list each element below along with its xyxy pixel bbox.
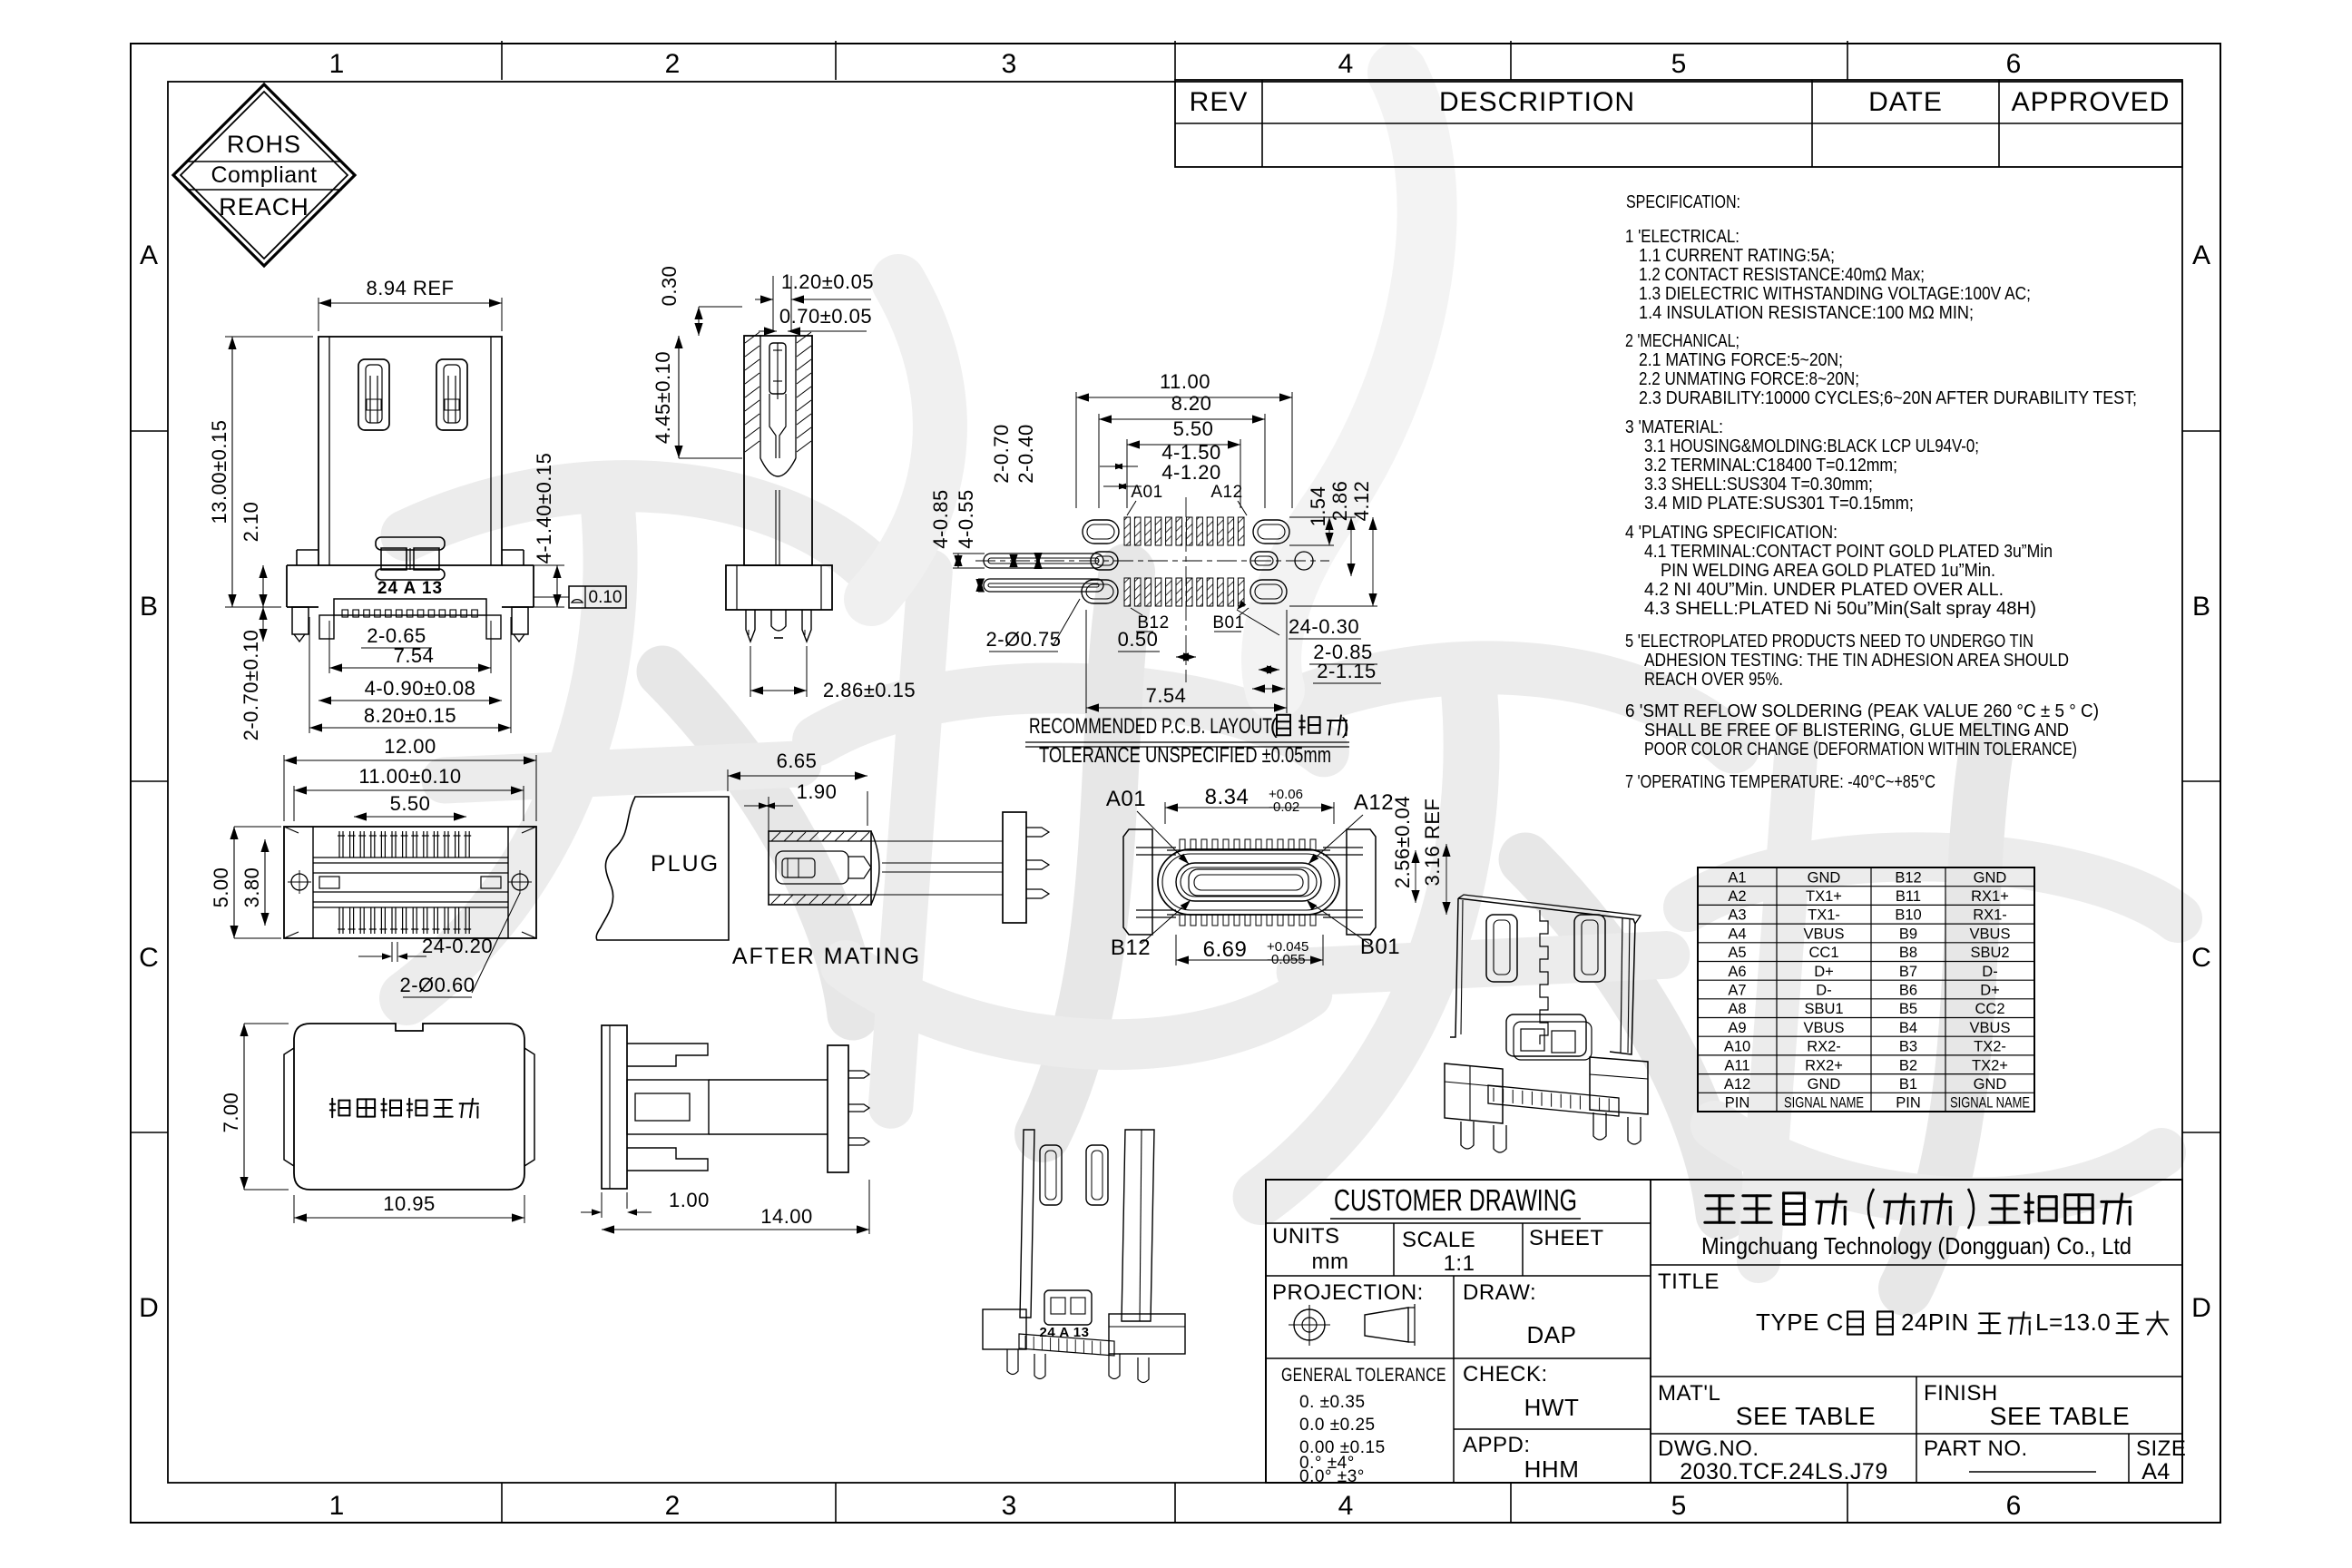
svg-text:A10: A10	[1724, 1039, 1750, 1055]
svg-text:4.2 NI 40U”Min. UNDER PLAT: 4.2 NI 40U”Min. UNDER PLATED OVER ALL.	[1644, 579, 2004, 600]
svg-text:D+: D+	[1980, 983, 2000, 999]
svg-text:C: C	[2191, 943, 2211, 973]
svg-text:7 'OPERATING TEMPERATURE: -40: 7 'OPERATING TEMPERATURE: -40°C~+85°C	[1625, 771, 1935, 792]
svg-text:3.16 REF: 3.16 REF	[1421, 799, 1444, 887]
svg-text:24 A 13: 24 A 13	[1040, 1325, 1090, 1340]
svg-text:1.54: 1.54	[1307, 486, 1329, 527]
svg-text:4 'PLATING SPECIFICATION:: 4 'PLATING SPECIFICATION:	[1625, 522, 1837, 543]
svg-text:3: 3	[1002, 1491, 1017, 1521]
svg-text:SBU1: SBU1	[1804, 1001, 1843, 1017]
svg-text:8.20: 8.20	[1171, 392, 1212, 415]
svg-text:TX1+: TX1+	[1806, 888, 1842, 905]
svg-text:1: 1	[329, 49, 345, 79]
svg-text:GND: GND	[1808, 869, 1841, 886]
svg-text:TX1-: TX1-	[1808, 907, 1840, 924]
svg-text:2.10: 2.10	[240, 502, 262, 543]
svg-text:2.56±0.04: 2.56±0.04	[1391, 796, 1414, 888]
svg-text:D-: D-	[1982, 964, 1997, 980]
svg-text:2-0.40: 2-0.40	[1014, 424, 1037, 483]
svg-text:A9: A9	[1728, 1020, 1746, 1036]
svg-text:4-1.20: 4-1.20	[1161, 461, 1220, 484]
svg-text:CUSTOMER DRAWING: CUSTOMER DRAWING	[1334, 1183, 1577, 1217]
svg-text:4-0.85: 4-0.85	[929, 489, 952, 548]
svg-text:Compliant: Compliant	[211, 162, 317, 188]
svg-text:C: C	[139, 943, 159, 973]
svg-text:0. ±0.35: 0. ±0.35	[1299, 1393, 1366, 1412]
svg-text:TITLE: TITLE	[1658, 1269, 1720, 1294]
svg-text:2-0.70: 2-0.70	[990, 424, 1013, 483]
svg-text:RECOMMENDED P.C.B. LAYOUT: RECOMMENDED P.C.B. LAYOUT	[1029, 714, 1272, 739]
svg-text:B6: B6	[1899, 983, 1917, 999]
svg-text:PART NO.: PART NO.	[1924, 1436, 2028, 1461]
svg-text:1: 1	[329, 1491, 345, 1521]
svg-text:2.86: 2.86	[1328, 481, 1351, 522]
svg-text:SIZE: SIZE	[2136, 1436, 2186, 1461]
svg-text:DRAW:: DRAW:	[1463, 1280, 1536, 1305]
svg-text:UNITS: UNITS	[1272, 1224, 1340, 1249]
svg-text:APPD:: APPD:	[1463, 1433, 1531, 1457]
svg-text:SIGNAL NAME: SIGNAL NAME	[1950, 1095, 2030, 1112]
svg-text:3.4 MID PLATE:SUS301 T=0.15: 3.4 MID PLATE:SUS301 T=0.15mm;	[1644, 493, 1914, 514]
svg-text:2.3 DURABILITY:10000 CYCLES;: 2.3 DURABILITY:10000 CYCLES;6~20N AFTER …	[1639, 387, 2137, 408]
svg-text:VBUS: VBUS	[1804, 926, 1845, 942]
svg-text:B9: B9	[1899, 926, 1917, 942]
svg-text:8.20±0.15: 8.20±0.15	[364, 704, 456, 727]
svg-text:DATE: DATE	[1868, 87, 1943, 117]
svg-text:B01: B01	[1360, 935, 1400, 959]
svg-text:6.65: 6.65	[777, 750, 818, 772]
svg-text:1.1 CURRENT RATING:5A;: 1.1 CURRENT RATING:5A;	[1639, 245, 1835, 266]
svg-text:24-0.20: 24-0.20	[422, 935, 493, 957]
svg-text:RX2-: RX2-	[1807, 1039, 1841, 1055]
svg-text:A8: A8	[1728, 1001, 1746, 1017]
svg-text:GND: GND	[1974, 1076, 2007, 1093]
svg-text:B12: B12	[1111, 936, 1151, 960]
svg-text:6 'SMT REFLOW SOLDERING (PE: 6 'SMT REFLOW SOLDERING (PEAK VALUE 260 …	[1625, 701, 2099, 721]
svg-text:RX1+: RX1+	[1971, 888, 2009, 905]
svg-text:14.00: 14.00	[760, 1205, 813, 1228]
svg-text:mm: mm	[1312, 1249, 1349, 1274]
svg-text:2: 2	[665, 1491, 681, 1521]
svg-text:B12: B12	[1895, 869, 1921, 886]
svg-text:SPECIFICATION:: SPECIFICATION:	[1626, 191, 1740, 212]
svg-text:2 'MECHANICAL;: 2 'MECHANICAL;	[1625, 330, 1739, 351]
svg-text:11.00±0.10: 11.00±0.10	[358, 765, 461, 788]
svg-text:A12: A12	[1724, 1076, 1750, 1093]
svg-text:1.20±0.05: 1.20±0.05	[781, 270, 874, 293]
svg-text:TYPE C: TYPE C	[1756, 1308, 1844, 1336]
svg-text:D: D	[139, 1293, 159, 1323]
svg-text:REV: REV	[1190, 87, 1249, 117]
svg-text:SIGNAL NAME: SIGNAL NAME	[1784, 1095, 1864, 1112]
svg-text:4-1.40±0.15: 4-1.40±0.15	[533, 453, 555, 564]
svg-text:SHALL BE FREE OF BLISTERIN: SHALL BE FREE OF BLISTERING, GLUE MELTIN…	[1644, 720, 2069, 740]
svg-text:DESCRIPTION: DESCRIPTION	[1439, 87, 1635, 117]
svg-text:DWG.NO.: DWG.NO.	[1658, 1436, 1759, 1461]
svg-text:HHM: HHM	[1524, 1455, 1580, 1483]
svg-text:B2: B2	[1899, 1057, 1917, 1073]
svg-text:1.90: 1.90	[797, 780, 838, 803]
svg-text:5: 5	[1671, 1491, 1687, 1521]
svg-text:MAT'L: MAT'L	[1658, 1381, 1720, 1406]
svg-text:GENERAL TOLERANCE: GENERAL TOLERANCE	[1281, 1365, 1446, 1386]
svg-text:2-1.15: 2-1.15	[1317, 660, 1376, 682]
svg-text:D-: D-	[1816, 983, 1831, 999]
svg-text:10.95: 10.95	[383, 1192, 436, 1215]
svg-text:1.4 INSULATION RESISTANCE:10: 1.4 INSULATION RESISTANCE:100 MΩ MIN;	[1639, 302, 1974, 323]
svg-text:A4: A4	[2141, 1459, 2171, 1485]
svg-text:5.50: 5.50	[1173, 417, 1214, 440]
svg-text:2-Ø0.60: 2-Ø0.60	[400, 974, 475, 996]
svg-text:0.10: 0.10	[589, 588, 622, 607]
svg-text:TX2+: TX2+	[1972, 1057, 2008, 1073]
svg-text:4: 4	[1338, 1491, 1354, 1521]
svg-text:5.00: 5.00	[210, 867, 232, 908]
svg-text:SBU2: SBU2	[1970, 945, 2009, 961]
svg-text:1.3 DIELECTRIC WITHSTANDING: 1.3 DIELECTRIC WITHSTANDING VOLTAGE:100V…	[1639, 283, 2031, 304]
svg-text:8.34: 8.34	[1205, 785, 1249, 809]
svg-text:A: A	[140, 240, 158, 270]
svg-text:6.69: 6.69	[1203, 937, 1248, 962]
svg-text:0.30: 0.30	[658, 266, 681, 307]
svg-text:13.00±0.15: 13.00±0.15	[208, 420, 230, 524]
svg-text:4.1 TERMINAL:CONTACT POINT: 4.1 TERMINAL:CONTACT POINT GOLD PLATED 3…	[1644, 541, 2053, 562]
svg-text:1.2 CONTACT RESISTANCE:40mΩ: 1.2 CONTACT RESISTANCE:40mΩ Max;	[1639, 264, 1925, 285]
svg-text:APPROVED: APPROVED	[2012, 87, 2171, 117]
svg-text:B4: B4	[1899, 1020, 1917, 1036]
svg-text:2-Ø0.75: 2-Ø0.75	[986, 628, 1062, 651]
svg-text:7.00: 7.00	[220, 1093, 242, 1133]
svg-text:7.54: 7.54	[394, 644, 435, 667]
svg-text:FINISH: FINISH	[1924, 1381, 1998, 1406]
svg-text:Mingchuang Technology (Donggua: Mingchuang Technology (Dongguan) Co., Lt…	[1701, 1232, 2131, 1259]
svg-text:4-0.55: 4-0.55	[955, 489, 977, 548]
svg-text:4.12: 4.12	[1350, 481, 1373, 522]
svg-text:PROJECTION:: PROJECTION:	[1272, 1280, 1424, 1305]
svg-text:B5: B5	[1899, 1001, 1917, 1017]
svg-text:24 A 13: 24 A 13	[377, 579, 443, 598]
svg-text:5 'ELECTROPLATED PRODUCTS NE: 5 'ELECTROPLATED PRODUCTS NEED TO UNDERG…	[1625, 631, 2033, 652]
svg-text:A01: A01	[1106, 787, 1146, 811]
svg-text:CC1: CC1	[1808, 945, 1838, 961]
svg-text:PIN: PIN	[1896, 1095, 1921, 1112]
svg-text:B3: B3	[1899, 1039, 1917, 1055]
svg-text:0.0° ±3°: 0.0° ±3°	[1299, 1467, 1365, 1486]
svg-text:SCALE: SCALE	[1402, 1228, 1475, 1252]
svg-text:PIN: PIN	[1725, 1095, 1750, 1112]
svg-text:2-0.70±0.10: 2-0.70±0.10	[240, 630, 262, 741]
svg-text:B1: B1	[1899, 1076, 1917, 1093]
svg-text:D: D	[2191, 1293, 2211, 1323]
svg-text:A12: A12	[1354, 790, 1394, 815]
svg-text:SHEET: SHEET	[1529, 1226, 1604, 1250]
svg-text:B8: B8	[1899, 945, 1917, 961]
svg-text:2.86±0.15: 2.86±0.15	[823, 679, 916, 701]
svg-text:11.00: 11.00	[1160, 370, 1210, 393]
svg-text:1.00: 1.00	[669, 1189, 710, 1211]
svg-text:A6: A6	[1728, 964, 1746, 980]
svg-text:3.80: 3.80	[240, 867, 263, 908]
svg-text:B: B	[140, 592, 158, 622]
svg-text:A: A	[2192, 240, 2210, 270]
svg-text:ADHESION TESTING: THE TIN: ADHESION TESTING: THE TIN ADHESION AREA …	[1644, 650, 2069, 671]
svg-text:24PIN: 24PIN	[1901, 1308, 1969, 1336]
svg-text:A1: A1	[1728, 869, 1746, 886]
svg-text:B7: B7	[1899, 964, 1917, 980]
svg-text:A11: A11	[1724, 1057, 1749, 1073]
svg-text:A4: A4	[1728, 926, 1746, 942]
svg-text:A12: A12	[1210, 483, 1242, 502]
svg-text:3 'MATERIAL:: 3 'MATERIAL:	[1625, 416, 1723, 437]
svg-text:L=13.0: L=13.0	[2035, 1308, 2111, 1336]
svg-text:24-0.30: 24-0.30	[1289, 615, 1359, 638]
svg-text:TOLERANCE UNSPECIFIED ±0.05m: TOLERANCE UNSPECIFIED ±0.05mm	[1039, 743, 1331, 768]
svg-text:2.1 MATING FORCE:5~20N;: 2.1 MATING FORCE:5~20N;	[1639, 349, 1843, 370]
svg-text:VBUS: VBUS	[1970, 1020, 2011, 1036]
svg-text:RX1-: RX1-	[1973, 907, 2007, 924]
svg-text:1 'ELECTRICAL:: 1 'ELECTRICAL:	[1625, 226, 1739, 247]
svg-text:5: 5	[1671, 49, 1687, 79]
svg-text:SEE TABLE: SEE TABLE	[1736, 1402, 1876, 1430]
svg-text:): )	[1342, 714, 1350, 739]
svg-text:B10: B10	[1895, 907, 1921, 924]
svg-text:3: 3	[1002, 49, 1017, 79]
svg-text:D+: D+	[1814, 964, 1834, 980]
svg-text:HWT: HWT	[1524, 1394, 1580, 1421]
svg-text:3.2 TERMINAL:C18400 T=0.12mm: 3.2 TERMINAL:C18400 T=0.12mm;	[1644, 455, 1897, 475]
svg-text:CC2: CC2	[1975, 1001, 2004, 1017]
svg-text:6: 6	[2006, 1491, 2022, 1521]
svg-text:4.45±0.10: 4.45±0.10	[652, 351, 674, 444]
svg-text:0.70±0.05: 0.70±0.05	[779, 305, 872, 328]
svg-text:2.2 UNMATING FORCE:8~20N;: 2.2 UNMATING FORCE:8~20N;	[1639, 368, 1859, 389]
svg-text:2: 2	[665, 49, 681, 79]
svg-text:A01: A01	[1131, 483, 1162, 502]
svg-text:PLUG: PLUG	[651, 851, 720, 877]
svg-text:GND: GND	[1974, 869, 2007, 886]
svg-text:6: 6	[2006, 49, 2022, 79]
svg-text:4-0.90±0.08: 4-0.90±0.08	[365, 677, 476, 700]
svg-text:CHECK:: CHECK:	[1463, 1362, 1548, 1387]
svg-text:0.0 ±0.25: 0.0 ±0.25	[1299, 1416, 1376, 1435]
svg-text:TX2-: TX2-	[1974, 1039, 2006, 1055]
svg-text:VBUS: VBUS	[1804, 1020, 1845, 1036]
svg-text:POOR COLOR CHANGE (DEFORMAT: POOR COLOR CHANGE (DEFORMATION WITHIN TO…	[1644, 739, 2077, 759]
svg-text:B: B	[2192, 592, 2210, 622]
svg-text:REACH OVER 95%.: REACH OVER 95%.	[1644, 669, 1783, 690]
svg-text:A3: A3	[1728, 907, 1746, 924]
svg-text:RX2+: RX2+	[1805, 1057, 1843, 1073]
svg-text:-0.055: -0.055	[1267, 952, 1306, 967]
svg-text:4.3 SHELL:PLATED Ni 50u”Min: 4.3 SHELL:PLATED Ni 50u”Min(Salt spray 4…	[1644, 598, 2036, 619]
svg-text:12.00: 12.00	[384, 735, 436, 758]
svg-text:A5: A5	[1728, 945, 1746, 961]
svg-text:3.3 SHELL:SUS304 T=0.30mm;: 3.3 SHELL:SUS304 T=0.30mm;	[1644, 474, 1873, 495]
svg-text:SEE TABLE: SEE TABLE	[1990, 1402, 2130, 1430]
svg-text:5.50: 5.50	[390, 792, 431, 815]
svg-text:A2: A2	[1728, 888, 1746, 905]
svg-text:PIN WELDING AREA GOLD PLAT: PIN WELDING AREA GOLD PLATED 1u”Min.	[1661, 560, 1995, 581]
svg-text:B01: B01	[1212, 613, 1244, 632]
svg-text:ROHS: ROHS	[227, 131, 301, 158]
svg-text:DAP: DAP	[1527, 1321, 1577, 1348]
svg-text:GND: GND	[1808, 1076, 1841, 1093]
svg-text:B11: B11	[1896, 888, 1921, 905]
svg-text:2030.TCF.24LS.J79: 2030.TCF.24LS.J79	[1680, 1459, 1887, 1485]
svg-text:3.1 HOUSING&MOLDING:BLACK LC: 3.1 HOUSING&MOLDING:BLACK LCP UL94V-0;	[1644, 436, 1979, 456]
svg-text:7.54: 7.54	[1146, 684, 1187, 707]
svg-text:REACH: REACH	[219, 193, 309, 220]
svg-text:A7: A7	[1728, 983, 1746, 999]
svg-text:AFTER MATING: AFTER MATING	[732, 944, 921, 969]
svg-text:4: 4	[1338, 49, 1354, 79]
svg-text:0.50: 0.50	[1118, 628, 1159, 651]
svg-text:8.94 REF: 8.94 REF	[367, 277, 455, 299]
svg-text:VBUS: VBUS	[1970, 926, 2011, 942]
svg-text:1:1: 1:1	[1444, 1251, 1475, 1276]
svg-text:-0.02: -0.02	[1269, 799, 1299, 815]
